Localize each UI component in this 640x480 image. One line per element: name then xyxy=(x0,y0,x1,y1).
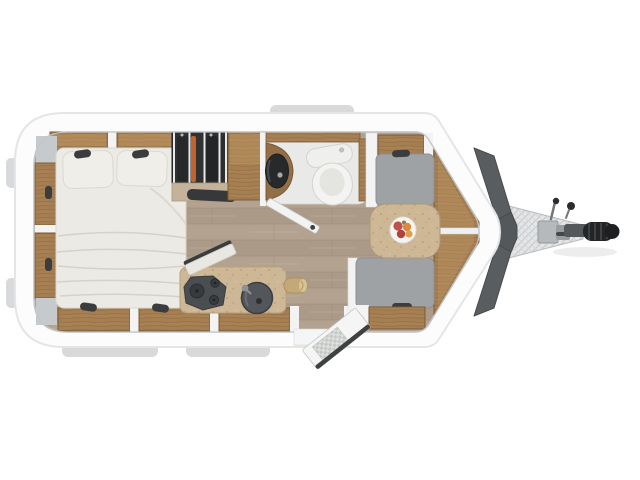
bottom-divider-1 xyxy=(130,307,139,332)
seat-side-panel-top xyxy=(366,133,377,207)
garment-2 xyxy=(197,136,204,181)
side-cabinet-divider xyxy=(35,225,57,233)
sink-drain xyxy=(256,298,262,304)
front-chest-seam xyxy=(434,228,479,234)
double-bed xyxy=(56,148,186,308)
hitch-grip-end xyxy=(605,224,620,239)
dinette-base-cabinet xyxy=(369,307,425,329)
garment-3 xyxy=(206,136,218,181)
garment-orange xyxy=(191,136,196,182)
seat-handle-front xyxy=(392,150,410,158)
tall-cabinet-light xyxy=(230,134,260,164)
corner-shelf-top xyxy=(36,136,57,163)
fruit-orange-1 xyxy=(403,223,411,231)
cabinet-handle-2 xyxy=(45,258,52,271)
floorplan-canvas xyxy=(0,0,640,480)
hitch-shadow xyxy=(553,247,617,257)
dinette-seat-front xyxy=(376,154,434,206)
garment-1 xyxy=(177,136,188,181)
hanger-hook-1 xyxy=(181,134,184,137)
burner-cap-2 xyxy=(214,282,217,285)
locker-shelf-light-2 xyxy=(119,134,171,146)
burner-cap-1 xyxy=(195,289,198,292)
bathroom-left-wall xyxy=(260,130,266,206)
bottom-divider-3 xyxy=(290,306,299,332)
bathroom-top-shelf xyxy=(266,132,360,142)
handbrake-knob xyxy=(567,202,575,210)
locker-shelf-light-1 xyxy=(52,134,106,146)
fruit-apple-1 xyxy=(393,221,402,230)
fruit-apple-2 xyxy=(397,230,405,238)
caravan-floorplan-image xyxy=(0,0,640,480)
dinette-seat-rear xyxy=(356,258,434,308)
garment-4 xyxy=(220,136,225,181)
coupling-plate xyxy=(538,221,558,243)
hanger-hook-2 xyxy=(210,134,213,137)
wardrobe xyxy=(172,132,236,202)
cabinet-handle-1 xyxy=(45,186,52,199)
rear-side-cabinets xyxy=(35,136,57,325)
basin-faucet xyxy=(277,172,282,177)
jockey-crank-knob xyxy=(553,198,559,204)
corner-shelf-bottom xyxy=(36,298,57,325)
fruit-orange-2 xyxy=(405,230,412,237)
burner-cap-3 xyxy=(213,299,216,302)
